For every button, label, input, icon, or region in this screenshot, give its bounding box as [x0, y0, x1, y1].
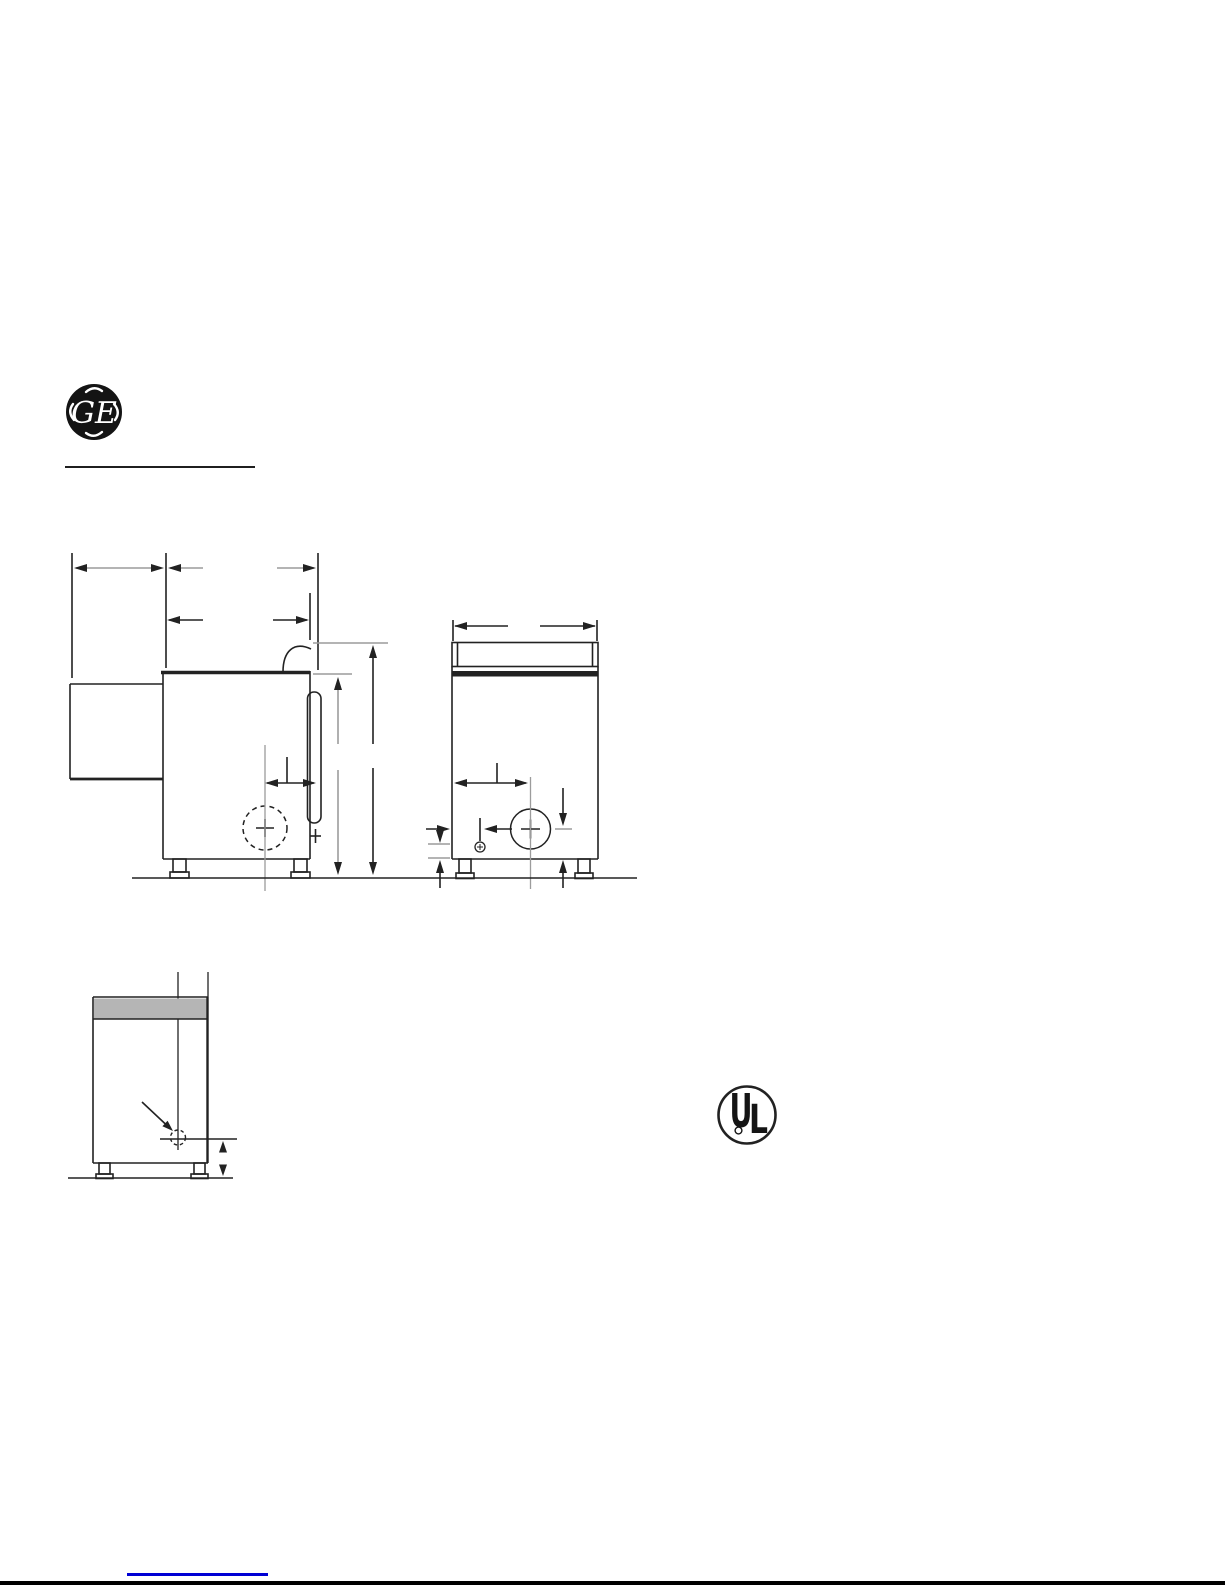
up-arrowhead — [219, 1141, 227, 1153]
front-view-segment — [454, 622, 467, 630]
leg-foot — [170, 872, 189, 878]
top-shaded-band — [94, 999, 207, 1019]
page-bottom-edge — [0, 1581, 1225, 1585]
leg — [194, 1163, 205, 1174]
front-view-segment — [484, 825, 497, 833]
side-view-segment — [265, 779, 278, 787]
side-view-segment — [296, 616, 309, 624]
technical-drawing — [0, 0, 1225, 1585]
ul-mark: U L — [712, 1080, 782, 1150]
side-view-segment — [334, 862, 342, 875]
leg — [459, 859, 471, 873]
leg — [99, 1163, 110, 1174]
side-view-segment — [168, 564, 181, 572]
backsplash — [452, 643, 598, 667]
side-view-segment — [167, 616, 180, 624]
down-arrowhead — [219, 1165, 227, 1177]
leg — [173, 859, 186, 872]
footer-link-underline[interactable] — [127, 1573, 268, 1576]
front-view-segment — [515, 779, 528, 787]
leg-foot — [291, 872, 310, 878]
side-view-segment — [151, 564, 164, 572]
leg — [294, 859, 307, 872]
front-view — [426, 620, 598, 889]
front-view-segment — [454, 779, 467, 787]
rear-view — [68, 972, 237, 1179]
ul-letter-l: L — [749, 1097, 768, 1143]
console-profile-arc — [283, 646, 311, 672]
side-view-segment — [74, 564, 87, 572]
front-view-segment — [436, 830, 444, 843]
pointer-arrow — [142, 1102, 167, 1126]
spec-sheet-page: GE U L — [0, 0, 1225, 1585]
top-edge-band — [452, 671, 598, 677]
side-view-segment — [303, 564, 316, 572]
side-view-segment — [334, 677, 342, 690]
front-view-segment — [559, 860, 567, 873]
side-view — [70, 553, 388, 891]
leg — [578, 859, 590, 873]
front-view-segment — [583, 622, 596, 630]
side-view-segment — [369, 862, 377, 875]
front-view-segment — [559, 813, 567, 826]
side-view-segment — [369, 645, 377, 658]
front-view-segment — [436, 860, 444, 873]
